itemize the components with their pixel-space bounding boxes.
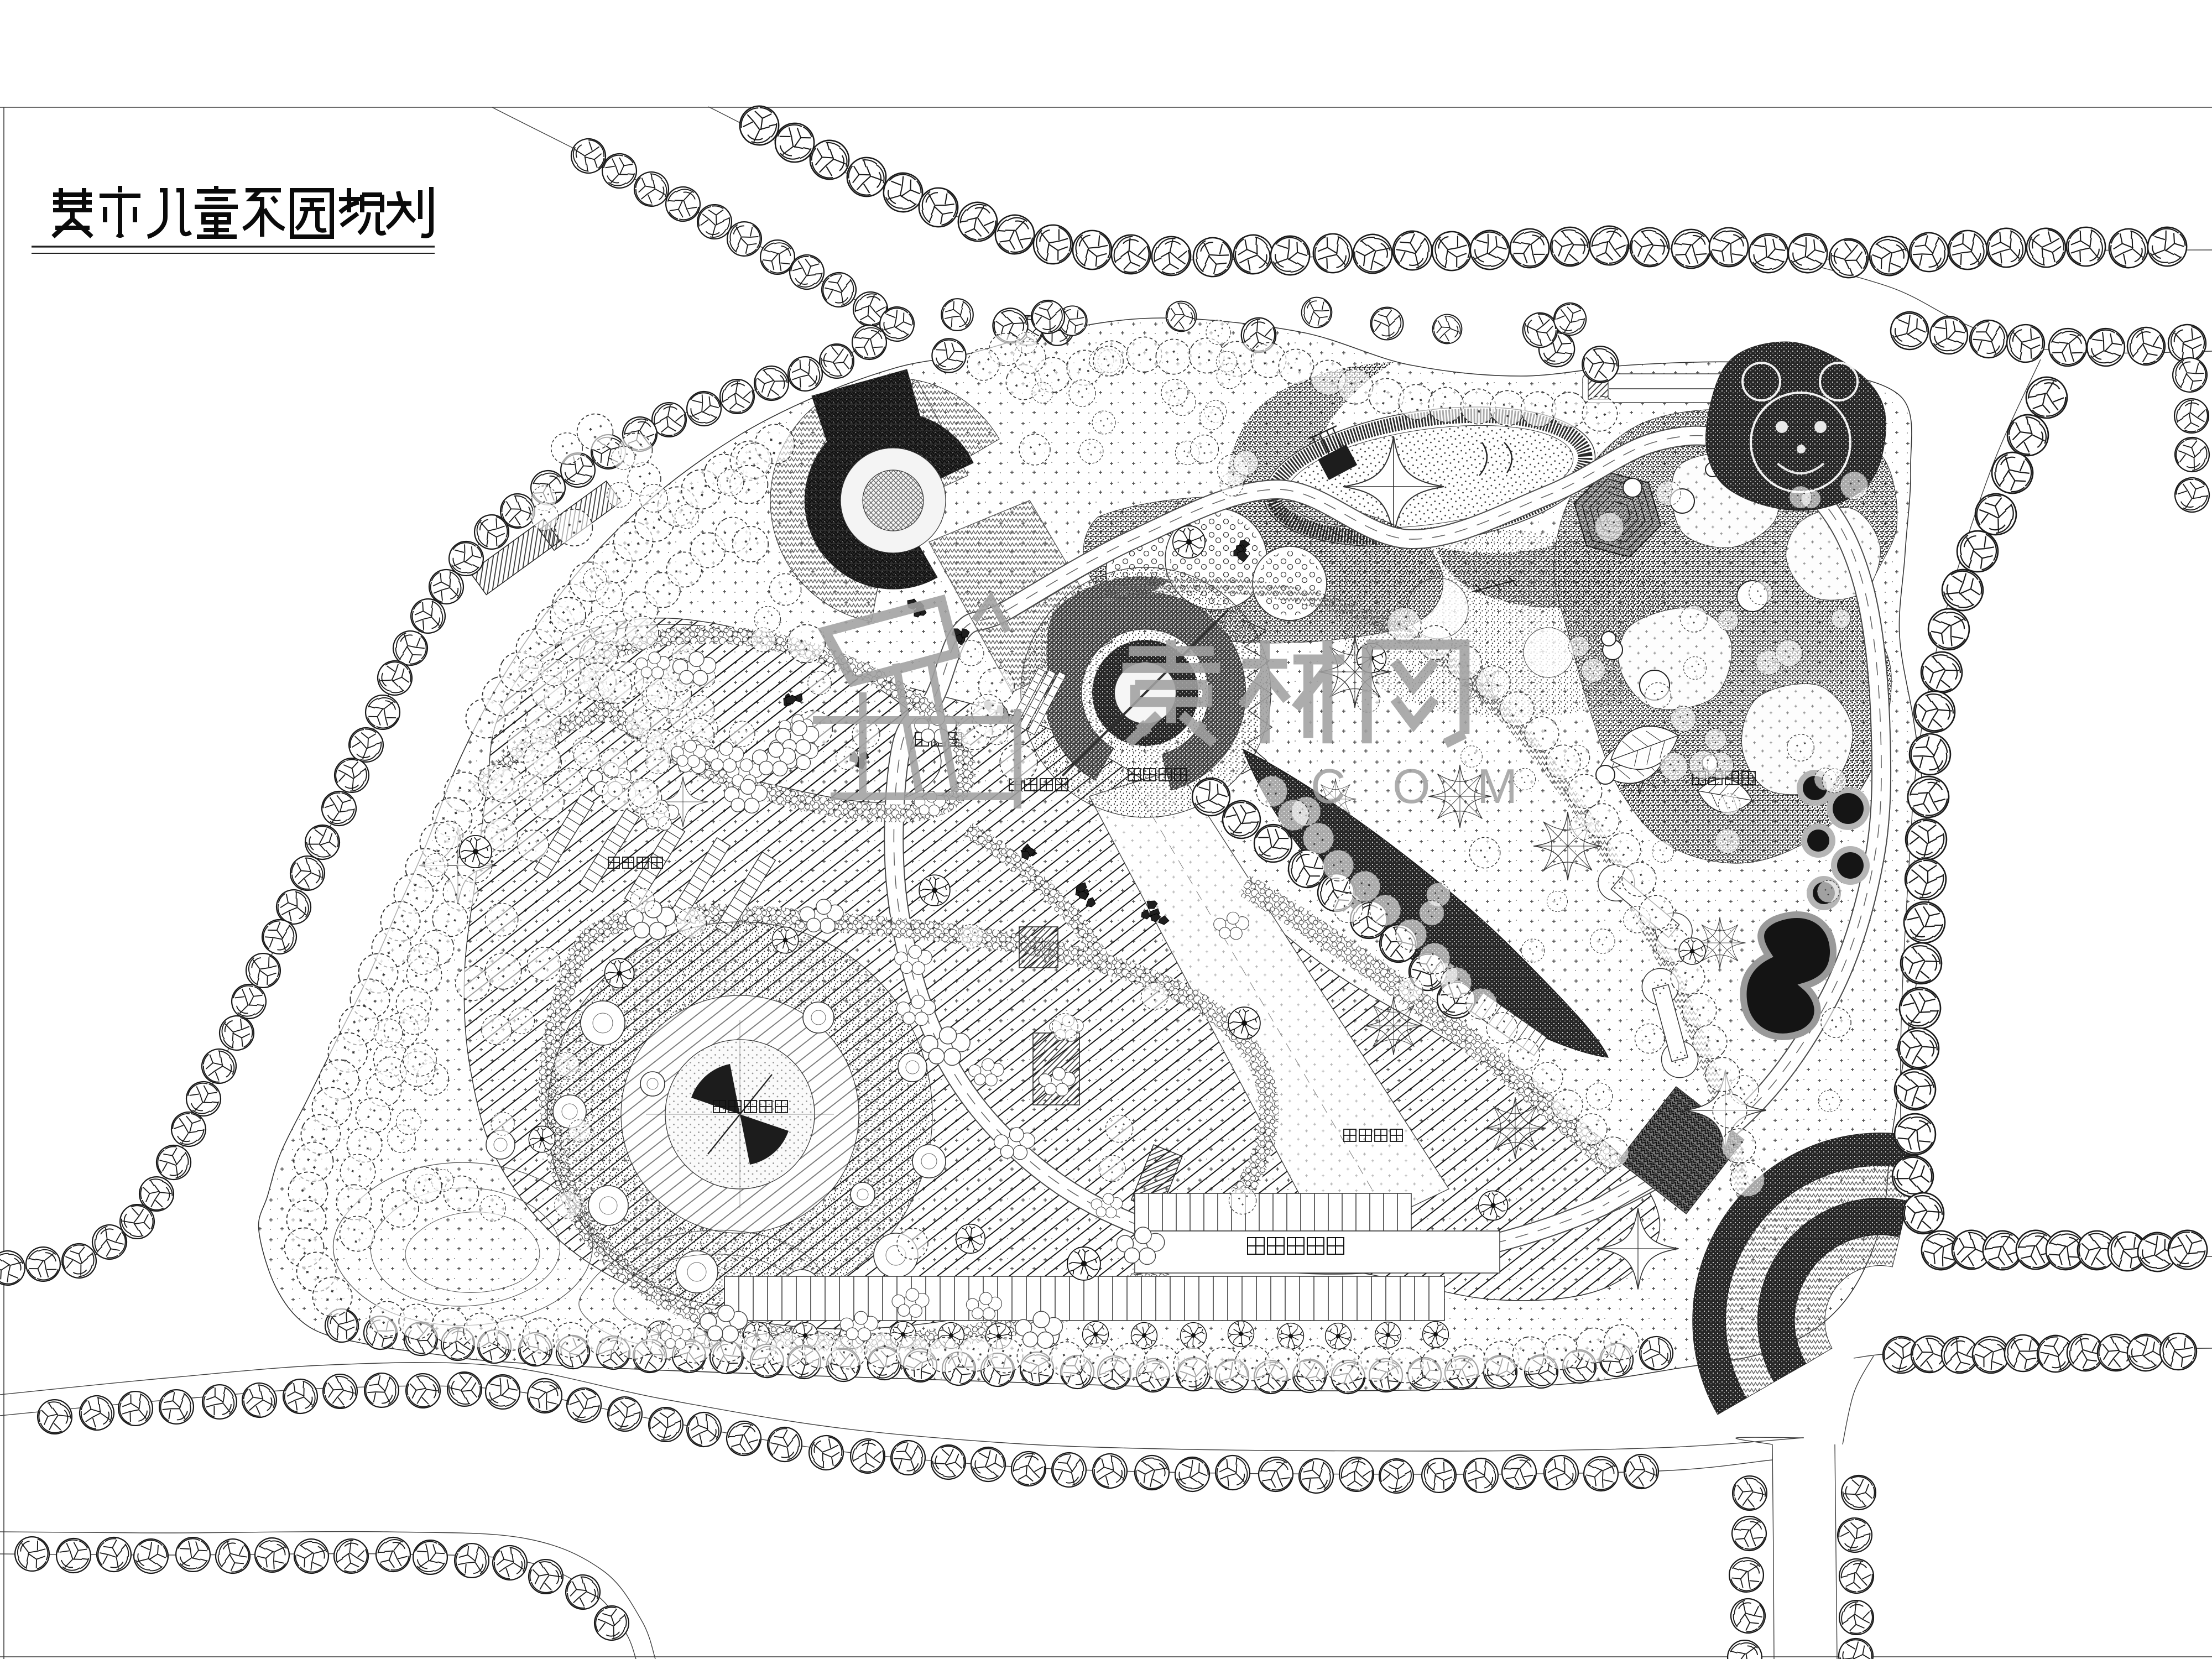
svg-text:C O M: C O M	[1311, 759, 1534, 813]
